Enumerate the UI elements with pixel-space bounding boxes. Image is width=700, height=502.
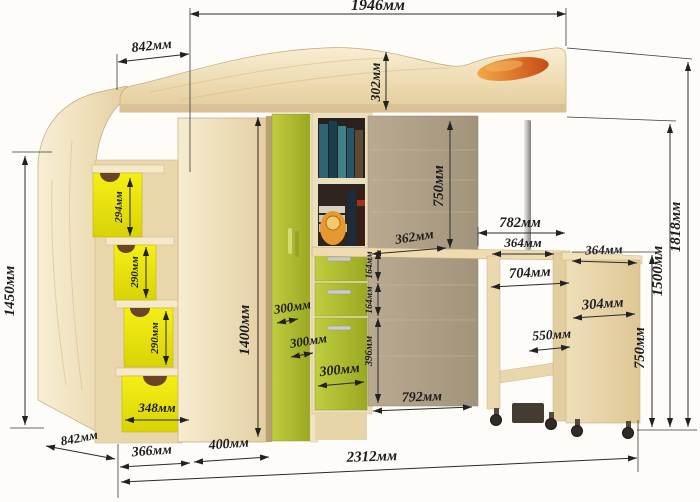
stair-tread-2 [106, 237, 174, 245]
dim-headboard-height: 302мм [368, 63, 383, 103]
dim-height-to-desk: 750мм [632, 327, 648, 369]
corner-wardrobe [178, 112, 318, 442]
dim-under-desk-width: 792мм [402, 389, 443, 405]
bed-bottom-rail [120, 104, 566, 112]
under-bed-back-panel [368, 116, 478, 406]
wardrobe-door-gap [266, 116, 272, 442]
mobile-desk-right-section [562, 252, 642, 439]
dim-drawer2-height: 164мм [365, 286, 375, 314]
bookshelf-column [312, 112, 372, 440]
mobile-desk-inner-shelf [500, 363, 553, 383]
caster-wheel [491, 408, 502, 426]
mobile-desk-left-side-panel [487, 256, 500, 409]
dim-step3-height: 290мм [149, 322, 161, 355]
dim-base-stairs-width: 366мм [130, 443, 173, 461]
bookshelf-base [315, 412, 367, 440]
dim-base-door-width: 400мм [207, 436, 250, 454]
dim-base-drawer-width: 348мм [137, 400, 175, 415]
dim-total-width: 2312мм [345, 448, 397, 466]
drawer-2-front [315, 283, 367, 316]
drawer-2-handle [327, 290, 351, 294]
wardrobe-door-green [272, 114, 310, 441]
wardrobe-handle-right [295, 231, 299, 257]
dim-step2-height: 290мм [129, 256, 141, 289]
stair-tread-3 [116, 300, 188, 308]
loft-bed-dimension-drawing: 1946мм 842мм 302мм 750мм 1450мм 294мм 29… [0, 0, 700, 502]
dim-table-inner-width: 704мм [509, 264, 551, 282]
dim-side-panel-height: 1450мм [2, 266, 18, 317]
dim-table-opening: 550мм [532, 326, 572, 344]
dim-table-right-depth: 304мм [580, 295, 624, 314]
drawer-1-handle [327, 257, 351, 261]
dim-wardrobe-height: 1400мм [237, 305, 253, 356]
bed-platform [120, 48, 566, 112]
dim-bed-depth-top: 842мм [131, 37, 173, 56]
caster-wheel [623, 421, 634, 439]
dim-lower-door-height: 396мм [364, 336, 375, 367]
mobile-desk-right-front [566, 260, 640, 423]
dim-step1-height: 294мм [113, 191, 125, 224]
dim-niche-width: 782мм [499, 215, 541, 231]
dim-base-side-depth: 842мм [59, 427, 99, 449]
dim-bed-length: 1946мм [351, 0, 405, 14]
mobile-desk-underbox [512, 403, 544, 423]
dim-drawer1-height: 164мм [365, 251, 375, 279]
wardrobe-handle-left [288, 228, 292, 254]
drawer-3-handle [327, 326, 351, 330]
dim-under-bed-clearance: 750мм [431, 165, 447, 207]
dim-table-left-top: 364мм [503, 235, 541, 250]
furniture-diagram-canvas: 1946мм 842мм 302мм 750мм 1450мм 294мм 29… [0, 0, 700, 502]
stair-tread-1 [92, 165, 164, 173]
wardrobe-door-left [178, 118, 266, 442]
dim-table-right-top: 364мм [584, 241, 623, 257]
